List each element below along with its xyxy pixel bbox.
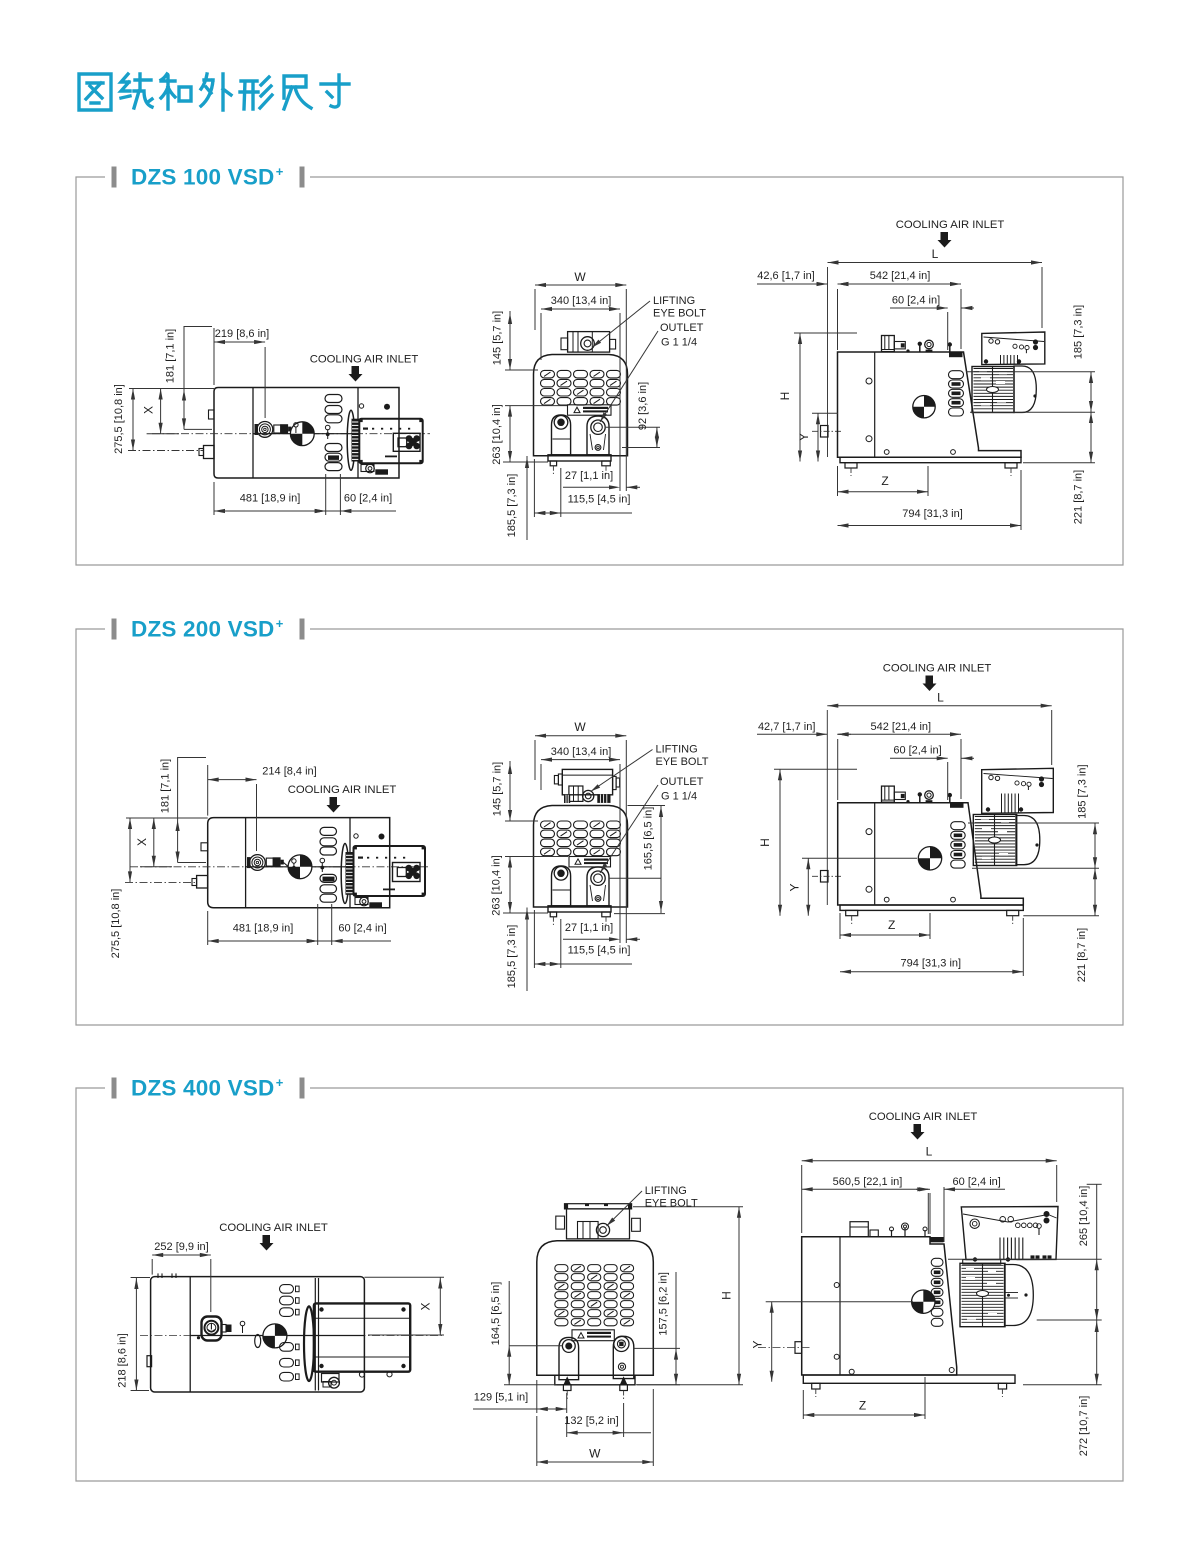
svg-text:181 [7,1 in]: 181 [7,1 in] (160, 759, 172, 813)
svg-text:115,5 [4,5 in]: 115,5 [4,5 in] (568, 494, 631, 506)
svg-text:263 [10,4 in]: 263 [10,4 in] (491, 404, 503, 465)
svg-text:+: + (276, 164, 284, 179)
svg-text:H: H (758, 838, 772, 847)
svg-text:Y: Y (751, 1340, 765, 1348)
svg-text:145 [5,7 in]: 145 [5,7 in] (492, 311, 504, 365)
svg-text:481 [18,9 in]: 481 [18,9 in] (233, 923, 294, 935)
svg-text:275,5 [10,8 in]: 275,5 [10,8 in] (110, 889, 122, 959)
svg-text:COOLING AIR INLET: COOLING AIR INLET (310, 354, 419, 366)
svg-text:60 [2,4 in]: 60 [2,4 in] (338, 923, 386, 935)
svg-text:185,5 [7,3 in]: 185,5 [7,3 in] (506, 474, 518, 538)
svg-text:560,5 [22,1 in]: 560,5 [22,1 in] (833, 1176, 903, 1188)
svg-text:W: W (574, 270, 586, 284)
svg-text:DZS 200 VSD: DZS 200 VSD (131, 617, 275, 642)
svg-text:Z: Z (859, 1399, 866, 1413)
svg-text:219 [8,6 in]: 219 [8,6 in] (215, 328, 269, 340)
svg-text:542 [21,4 in]: 542 [21,4 in] (870, 270, 931, 282)
svg-text:265 [10,4 in]: 265 [10,4 in] (1078, 1186, 1090, 1247)
svg-text:DZS 100 VSD: DZS 100 VSD (131, 165, 275, 190)
svg-text:LIFTING: LIFTING (653, 295, 695, 307)
svg-text:+: + (276, 616, 284, 631)
svg-text:340 [13,4 in]: 340 [13,4 in] (551, 295, 612, 307)
svg-text:Z: Z (881, 474, 888, 488)
svg-text:LIFTING: LIFTING (645, 1185, 687, 1197)
svg-text:42,7 [1,7 in]: 42,7 [1,7 in] (758, 721, 816, 733)
svg-text:157,5 [6,2 in]: 157,5 [6,2 in] (657, 1272, 669, 1336)
svg-text:27 [1,1 in]: 27 [1,1 in] (565, 470, 613, 482)
svg-text:275,5 [10,8 in]: 275,5 [10,8 in] (113, 384, 125, 454)
svg-text:132 [5,2 in]: 132 [5,2 in] (564, 1415, 618, 1427)
svg-text:G 1 1/4: G 1 1/4 (661, 791, 697, 803)
svg-text:X: X (135, 838, 149, 846)
svg-text:221 [8,7 in]: 221 [8,7 in] (1073, 470, 1085, 524)
svg-text:COOLING AIR INLET: COOLING AIR INLET (896, 219, 1005, 231)
svg-text:W: W (574, 720, 586, 734)
svg-text:185 [7,3 in]: 185 [7,3 in] (1073, 305, 1085, 359)
svg-text:27 [1,1 in]: 27 [1,1 in] (565, 922, 613, 934)
svg-text:794 [31,3 in]: 794 [31,3 in] (901, 958, 962, 970)
svg-text:481 [18,9 in]: 481 [18,9 in] (240, 493, 301, 505)
svg-text:COOLING AIR INLET: COOLING AIR INLET (288, 784, 397, 796)
svg-text:COOLING AIR INLET: COOLING AIR INLET (883, 663, 992, 675)
svg-text:Y: Y (797, 433, 811, 441)
svg-text:L: L (932, 247, 939, 261)
svg-text:165,5 [6,5 in]: 165,5 [6,5 in] (643, 807, 655, 871)
svg-text:COOLING AIR INLET: COOLING AIR INLET (869, 1111, 978, 1123)
svg-text:340 [13,4 in]: 340 [13,4 in] (551, 746, 612, 758)
svg-text:DZS 400 VSD: DZS 400 VSD (131, 1076, 275, 1101)
svg-text:H: H (720, 1291, 734, 1300)
svg-text:115,5 [4,5 in]: 115,5 [4,5 in] (568, 945, 631, 957)
svg-text:Y: Y (787, 883, 801, 891)
svg-text:+: + (276, 1075, 284, 1090)
svg-text:EYE BOLT: EYE BOLT (656, 756, 709, 768)
svg-text:60 [2,4 in]: 60 [2,4 in] (892, 295, 940, 307)
svg-text:COOLING AIR INLET: COOLING AIR INLET (219, 1222, 328, 1234)
svg-text:252 [9,9 in]: 252 [9,9 in] (154, 1241, 208, 1253)
svg-text:92 [3,6 in]: 92 [3,6 in] (637, 382, 649, 430)
svg-text:60 [2,4 in]: 60 [2,4 in] (953, 1176, 1001, 1188)
svg-text:G 1 1/4: G 1 1/4 (661, 337, 697, 349)
svg-text:OUTLET: OUTLET (660, 322, 704, 334)
svg-text:W: W (589, 1447, 601, 1461)
svg-text:L: L (937, 691, 944, 705)
svg-text:218 [8,6 in]: 218 [8,6 in] (116, 1333, 128, 1387)
svg-text:Z: Z (888, 918, 895, 932)
svg-text:H: H (778, 392, 792, 401)
svg-text:145 [5,7 in]: 145 [5,7 in] (492, 762, 504, 816)
svg-text:60 [2,4 in]: 60 [2,4 in] (344, 493, 392, 505)
svg-text:EYE BOLT: EYE BOLT (645, 1198, 698, 1210)
svg-text:181 [7,1 in]: 181 [7,1 in] (165, 329, 177, 383)
svg-text:185,5 [7,3 in]: 185,5 [7,3 in] (506, 925, 518, 989)
svg-text:272 [10,7 in]: 272 [10,7 in] (1078, 1396, 1090, 1457)
svg-text:L: L (926, 1145, 933, 1159)
svg-text:185 [7,3 in]: 185 [7,3 in] (1077, 764, 1089, 818)
svg-text:214 [8,4 in]: 214 [8,4 in] (262, 766, 316, 778)
svg-text:LIFTING: LIFTING (656, 744, 698, 756)
svg-text:794 [31,3 in]: 794 [31,3 in] (902, 508, 963, 520)
svg-text:EYE BOLT: EYE BOLT (653, 308, 706, 320)
svg-text:60 [2,4 in]: 60 [2,4 in] (893, 745, 941, 757)
svg-text:42,6 [1,7 in]: 42,6 [1,7 in] (757, 270, 815, 282)
svg-text:129 [5,1 in]: 129 [5,1 in] (474, 1392, 528, 1404)
svg-text:221 [8,7 in]: 221 [8,7 in] (1076, 928, 1088, 982)
svg-text:542 [21,4 in]: 542 [21,4 in] (871, 721, 932, 733)
svg-text:164,5 [6,5 in]: 164,5 [6,5 in] (490, 1282, 502, 1346)
svg-text:263 [10,4 in]: 263 [10,4 in] (491, 855, 503, 916)
svg-text:X: X (142, 406, 156, 414)
svg-text:OUTLET: OUTLET (660, 776, 704, 788)
svg-text:X: X (419, 1302, 433, 1310)
